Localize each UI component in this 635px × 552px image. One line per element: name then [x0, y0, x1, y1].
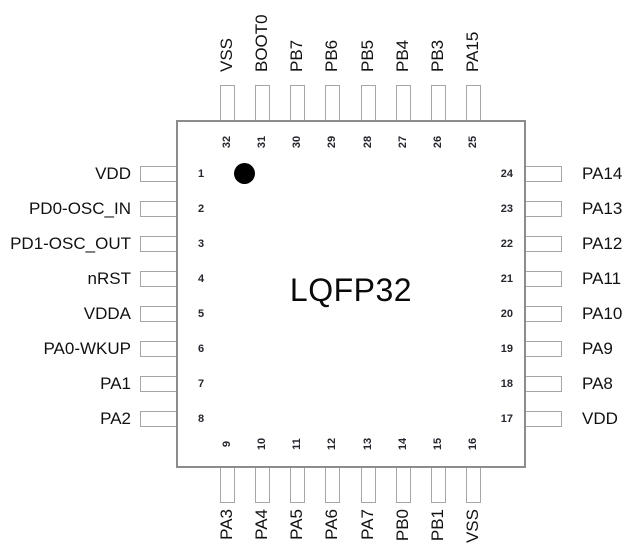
pin-label: PA10	[582, 304, 635, 324]
pin-label: PA14	[582, 164, 635, 184]
pin-label: PA9	[582, 339, 635, 359]
pin-label: PA6	[323, 509, 341, 552]
pin-stub-top	[466, 85, 481, 123]
pin-stub-right	[524, 376, 562, 392]
pin-label: PB6	[323, 0, 341, 72]
pin-label: PA15	[464, 0, 482, 72]
pin-label: PA8	[582, 374, 635, 394]
pin-stub-top	[220, 85, 235, 123]
pin-stub-top	[255, 85, 270, 123]
pin-stub-bottom	[396, 465, 411, 503]
pin-number: 13	[361, 429, 375, 459]
lqfp32-pinout-diagram: LQFP32 32VSS9PA31VDD24PA1431BOOT010PA42P…	[0, 0, 635, 552]
pin-stub-right	[524, 236, 562, 252]
pin-number: 16	[466, 429, 480, 459]
pin-label: VDD	[0, 164, 131, 184]
pin-number: 5	[190, 306, 212, 322]
pin-number: 26	[431, 127, 445, 157]
pin-stub-left	[140, 306, 178, 322]
pin-number: 32	[220, 127, 234, 157]
pin-stub-bottom	[255, 465, 270, 503]
pin-stub-top	[325, 85, 340, 123]
pin-stub-top	[396, 85, 411, 123]
pin-number: 27	[396, 127, 410, 157]
pin1-indicator-dot	[234, 163, 255, 184]
pin-stub-bottom	[466, 465, 481, 503]
pin-number: 4	[190, 271, 212, 287]
pin-stub-left	[140, 166, 178, 182]
pin-label: PB7	[288, 0, 306, 72]
pin-number: 29	[325, 127, 339, 157]
pin-stub-left	[140, 201, 178, 217]
pin-number: 22	[483, 236, 513, 252]
pin-stub-left	[140, 376, 178, 392]
pin-stub-bottom	[290, 465, 305, 503]
pin-label: PA0-WKUP	[0, 339, 131, 359]
pin-label: PD0-OSC_IN	[0, 199, 131, 219]
pin-number: 9	[220, 429, 234, 459]
pin-stub-right	[524, 341, 562, 357]
pin-label: PB5	[359, 0, 377, 72]
pin-label: PB4	[394, 0, 412, 72]
pin-stub-left	[140, 236, 178, 252]
pin-label: VDDA	[0, 304, 131, 324]
pin-stub-right	[524, 166, 562, 182]
pin-stub-bottom	[220, 465, 235, 503]
pin-stub-left	[140, 271, 178, 287]
pin-stub-left	[140, 411, 178, 427]
pin-label: PA1	[0, 374, 131, 394]
package-name: LQFP32	[176, 270, 526, 310]
pin-number: 30	[290, 127, 304, 157]
pin-label: VSS	[464, 509, 482, 552]
pin-number: 2	[190, 201, 212, 217]
pin-number: 10	[255, 429, 269, 459]
pin-label: PB3	[429, 0, 447, 72]
pin-label: VDD	[582, 409, 635, 429]
pin-number: 18	[483, 376, 513, 392]
pin-stub-bottom	[325, 465, 340, 503]
pin-label: PA5	[288, 509, 306, 552]
pin-stub-right	[524, 411, 562, 427]
pin-label: PA2	[0, 409, 131, 429]
pin-label: PA11	[582, 269, 635, 289]
pin-label: PA13	[582, 199, 635, 219]
pin-stub-bottom	[361, 465, 376, 503]
pin-number: 23	[483, 201, 513, 217]
pin-label: PA7	[359, 509, 377, 552]
pin-stub-right	[524, 201, 562, 217]
pin-stub-right	[524, 271, 562, 287]
pin-number: 28	[361, 127, 375, 157]
pin-number: 1	[190, 166, 212, 182]
pin-label: BOOT0	[253, 0, 271, 72]
pin-number: 12	[325, 429, 339, 459]
pin-stub-left	[140, 341, 178, 357]
pin-label: PB1	[429, 509, 447, 552]
pin-label: nRST	[0, 269, 131, 289]
pin-number: 8	[190, 411, 212, 427]
pin-number: 20	[483, 306, 513, 322]
pin-label: PD1-OSC_OUT	[0, 234, 131, 254]
pin-number: 3	[190, 236, 212, 252]
pin-number: 7	[190, 376, 212, 392]
pin-label: PA4	[253, 509, 271, 552]
pin-label: PA3	[218, 509, 236, 552]
pin-number: 25	[466, 127, 480, 157]
pin-number: 31	[255, 127, 269, 157]
pin-stub-bottom	[431, 465, 446, 503]
pin-stub-top	[361, 85, 376, 123]
pin-number: 15	[431, 429, 445, 459]
pin-number: 17	[483, 411, 513, 427]
pin-stub-top	[290, 85, 305, 123]
pin-number: 14	[396, 429, 410, 459]
pin-number: 24	[483, 166, 513, 182]
pin-label: PB0	[394, 509, 412, 552]
pin-number: 19	[483, 341, 513, 357]
pin-number: 6	[190, 341, 212, 357]
pin-stub-top	[431, 85, 446, 123]
pin-label: PA12	[582, 234, 635, 254]
pin-stub-right	[524, 306, 562, 322]
pin-number: 21	[483, 271, 513, 287]
pin-label: VSS	[218, 0, 236, 72]
pin-number: 11	[290, 429, 304, 459]
